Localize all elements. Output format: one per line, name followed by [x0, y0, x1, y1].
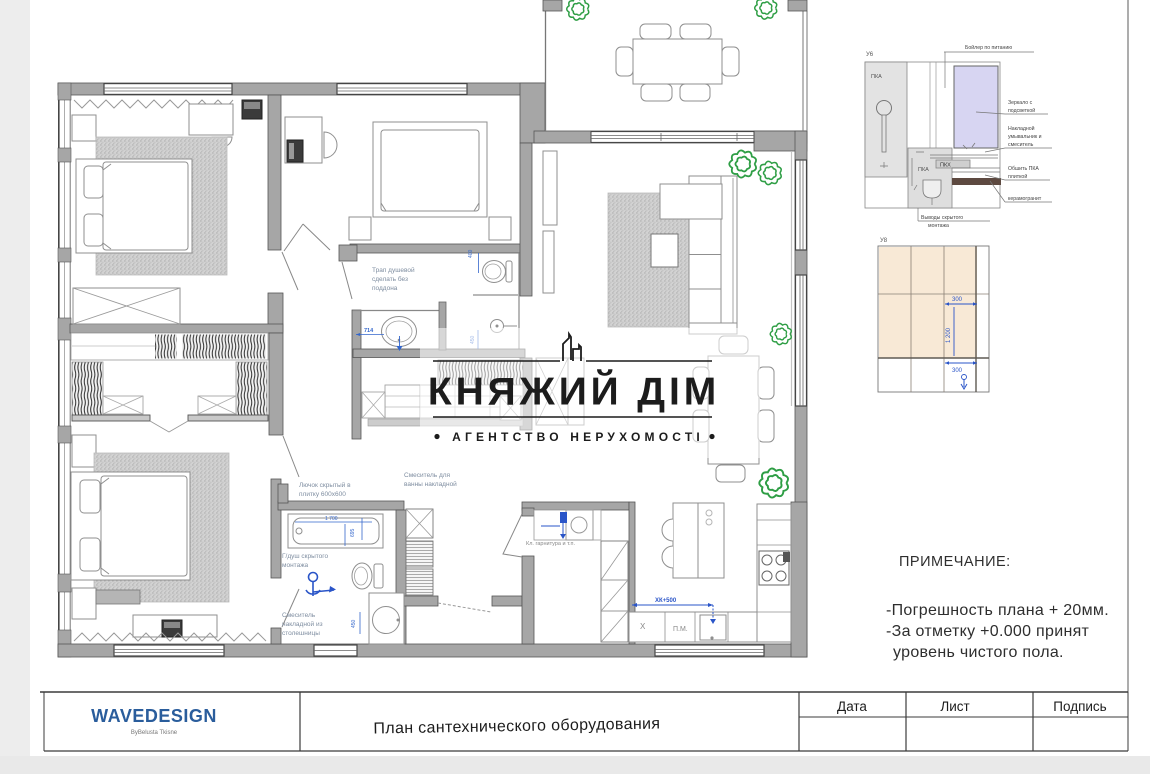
svg-text:695: 695	[350, 528, 356, 537]
svg-text:Дата: Дата	[837, 699, 867, 714]
svg-text:1 200: 1 200	[946, 327, 952, 343]
svg-text:столешницы: столешницы	[282, 630, 320, 637]
svg-text:Смеситель для: Смеситель для	[404, 472, 451, 479]
svg-text:плиткой: плиткой	[1008, 173, 1027, 180]
svg-text:Лючок скрытый в: Лючок скрытый в	[299, 481, 351, 489]
svg-text:смеситель: смеситель	[1008, 142, 1034, 148]
svg-text:ПКХ: ПКХ	[940, 163, 951, 169]
svg-text:керамогранит: керамогранит	[1008, 196, 1042, 202]
svg-text:сделать без: сделать без	[372, 275, 408, 283]
svg-text:ванны накладной: ванны накладной	[404, 480, 457, 488]
svg-text:ByBelusta Tkisne: ByBelusta Tkisne	[131, 730, 178, 736]
svg-text:Выводы скрытого: Выводы скрытого	[921, 215, 963, 221]
svg-text:монтажа: монтажа	[282, 562, 309, 569]
svg-text:Лист: Лист	[940, 699, 969, 714]
svg-text:монтажа: монтажа	[928, 223, 949, 229]
svg-text:ХК+500: ХК+500	[655, 598, 677, 604]
svg-text:КНЯЖИЙ ДІМ: КНЯЖИЙ ДІМ	[428, 369, 720, 414]
svg-text:подсветкой: подсветкой	[1008, 107, 1035, 114]
svg-text:умывальник и: умывальник и	[1008, 134, 1042, 140]
svg-text:-Погрешность плана + 20мм.: -Погрешность плана + 20мм.	[886, 602, 1109, 619]
svg-text:Обшить ПКА: Обшить ПКА	[1008, 166, 1039, 172]
svg-text:Х: Х	[640, 622, 646, 631]
svg-text:ПКА: ПКА	[871, 74, 882, 80]
svg-text:Трап душевой: Трап душевой	[372, 266, 415, 274]
svg-text:накладной из: накладной из	[282, 620, 323, 628]
svg-text:Бойлер по питанию: Бойлер по питанию	[965, 44, 1012, 51]
svg-text:400: 400	[468, 249, 474, 258]
svg-text:П.М.: П.М.	[673, 626, 688, 633]
svg-text:уровень чистого пола.: уровень чистого пола.	[893, 644, 1064, 661]
svg-text:1 700: 1 700	[325, 516, 338, 522]
svg-text:Зеркало с: Зеркало с	[1008, 100, 1033, 106]
svg-text:У6: У6	[866, 52, 874, 58]
svg-text:Подпись: Подпись	[1053, 699, 1106, 714]
svg-text:Кл. гарнитура и т.п.: Кл. гарнитура и т.п.	[526, 541, 576, 547]
svg-text:-За отметку +0.000 принят: -За отметку +0.000 принят	[886, 623, 1090, 640]
svg-text:АГЕНТСТВО НЕРУХОМОСТІ: АГЕНТСТВО НЕРУХОМОСТІ	[452, 430, 704, 444]
svg-text:WAVEDESIGN: WAVEDESIGN	[91, 706, 217, 726]
svg-text:Г/душ скрытого: Г/душ скрытого	[282, 553, 329, 560]
svg-text:поддона: поддона	[372, 285, 398, 292]
svg-text:плитку 600х600: плитку 600х600	[299, 491, 346, 498]
svg-text:300: 300	[952, 368, 963, 374]
svg-text:450: 450	[351, 619, 357, 628]
svg-text:ПКА: ПКА	[918, 167, 929, 173]
svg-text:У8: У8	[880, 238, 888, 244]
svg-text:Смеситель: Смеситель	[282, 612, 316, 619]
svg-text:Накладной: Накладной	[1008, 125, 1035, 132]
svg-text:714: 714	[364, 328, 374, 334]
svg-text:300: 300	[952, 297, 963, 303]
svg-text:ПРИМЕЧАНИЕ:: ПРИМЕЧАНИЕ:	[899, 554, 1011, 570]
